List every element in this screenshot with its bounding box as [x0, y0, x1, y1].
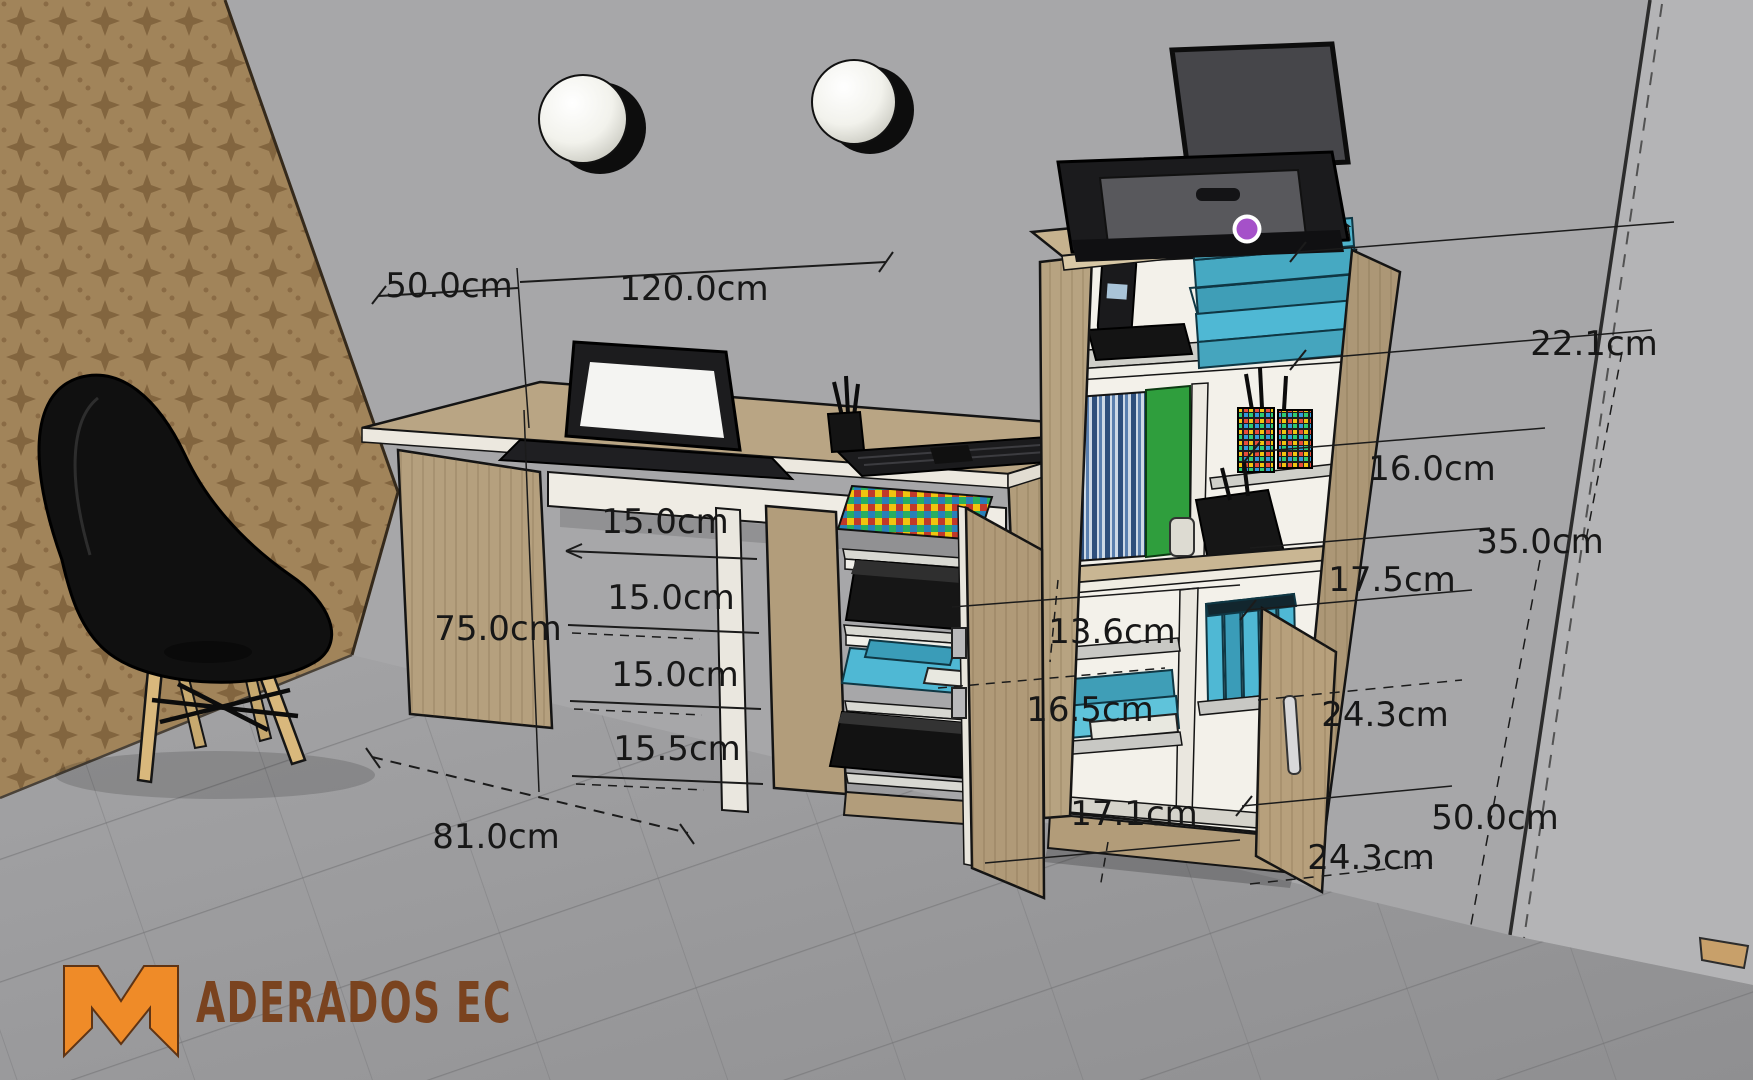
printer-slot — [1196, 188, 1240, 201]
chair-seat-mount — [164, 641, 252, 663]
dim-cabinet-gap-17-5: 17.5cm — [1328, 560, 1456, 600]
dim-shelf-gap-1: 15.0cm — [601, 502, 729, 542]
dim-desk-depth: 81.0cm — [432, 817, 560, 857]
dim-cabinet-lower-section: 50.0cm — [1431, 798, 1559, 838]
dim-cabinet-gap-16: 16.0cm — [1368, 449, 1496, 489]
hinge — [952, 628, 966, 658]
desk-left-panel-grain — [398, 450, 552, 728]
dim-shelf-gap-2: 15.0cm — [607, 578, 735, 618]
logo-wordmark: ADERADOS EC — [196, 971, 512, 1036]
dim-cabinet-door-upper: 24.3cm — [1321, 695, 1449, 735]
pen-cup — [828, 376, 864, 452]
dim-cabinet-door-lower: 24.3cm — [1307, 838, 1435, 878]
jar — [1170, 518, 1194, 556]
dim-cabinet-upper-section: 35.0cm — [1476, 522, 1604, 562]
dim-cabinet-gap-17-1: 17.1cm — [1070, 794, 1198, 834]
scene-canvas: 50.0cm 120.0cm 22.1cm 16.0cm 35.0cm 17.5… — [0, 0, 1753, 1080]
dim-wall-to-desk: 50.0cm — [385, 266, 513, 306]
render-viewport: 50.0cm 120.0cm 22.1cm 16.0cm 35.0cm 17.5… — [0, 0, 1753, 1080]
dim-desk-height: 75.0cm — [434, 609, 562, 649]
selection-marker-dot — [1233, 215, 1262, 244]
dim-cabinet-gap-13-6: 13.6cm — [1048, 612, 1176, 652]
dim-shelf-gap-4: 15.5cm — [613, 729, 741, 769]
laptop-screen — [580, 362, 724, 438]
hinge — [952, 688, 966, 718]
printer — [1058, 152, 1348, 262]
desk-accessory — [930, 445, 973, 464]
dim-desk-width: 120.0cm — [619, 269, 768, 309]
chair-shadow — [55, 751, 375, 799]
dim-cabinet-gap-16-5: 16.5cm — [1026, 690, 1154, 730]
dim-shelf-gap-3: 15.0cm — [611, 655, 739, 695]
dim-cabinet-top-gap: 22.1cm — [1530, 324, 1658, 364]
